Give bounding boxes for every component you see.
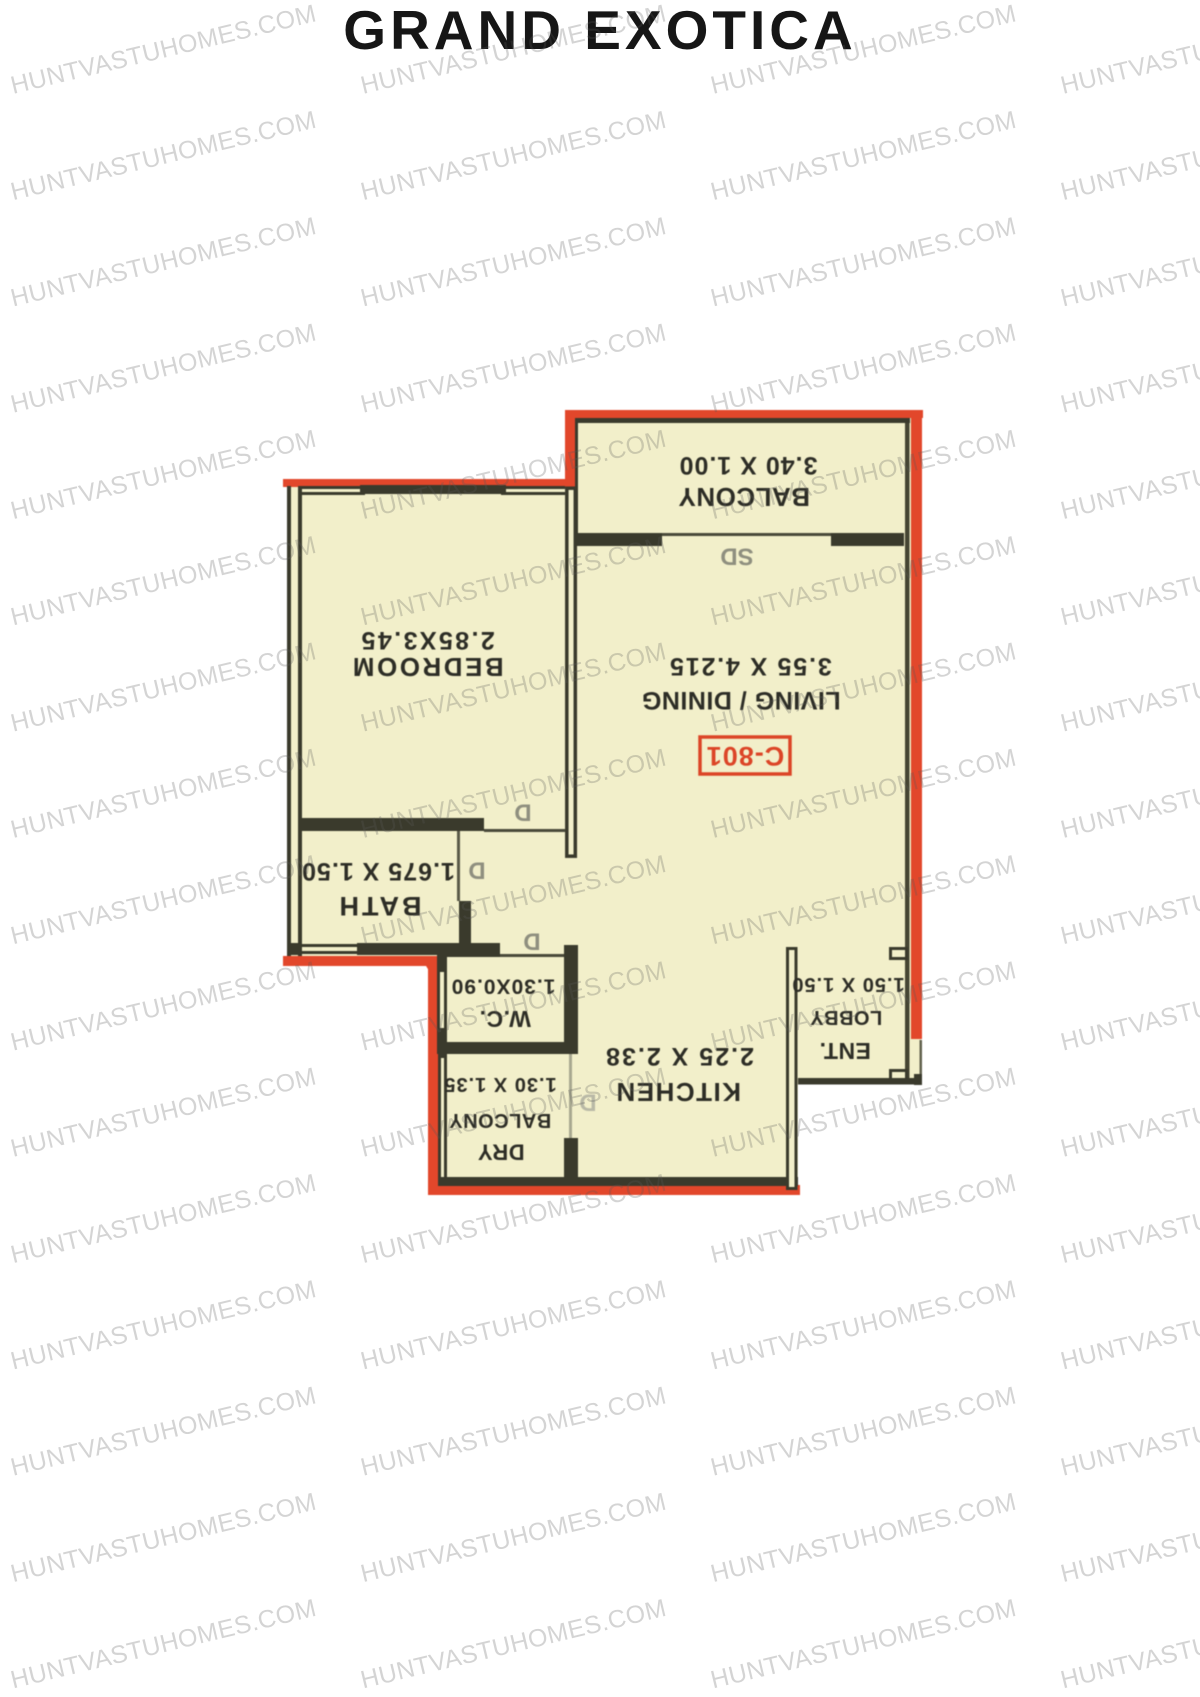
svg-text:HUNTVASTUHOMES.COM: HUNTVASTUHOMES.COM — [358, 850, 669, 950]
svg-text:HUNTVASTUHOMES.COM: HUNTVASTUHOMES.COM — [358, 425, 669, 525]
svg-text:HUNTVASTUHOMES.COM: HUNTVASTUHOMES.COM — [1058, 318, 1200, 418]
svg-text:HUNTVASTUHOMES.COM: HUNTVASTUHOMES.COM — [358, 1594, 669, 1694]
svg-text:HUNTVASTUHOMES.COM: HUNTVASTUHOMES.COM — [708, 956, 1019, 1056]
svg-text:HUNTVASTUHOMES.COM: HUNTVASTUHOMES.COM — [8, 637, 319, 737]
svg-text:HUNTVASTUHOMES.COM: HUNTVASTUHOMES.COM — [8, 744, 319, 844]
svg-text:HUNTVASTUHOMES.COM: HUNTVASTUHOMES.COM — [708, 1275, 1019, 1375]
svg-text:HUNTVASTUHOMES.COM: HUNTVASTUHOMES.COM — [1058, 1062, 1200, 1162]
svg-text:HUNTVASTUHOMES.COM: HUNTVASTUHOMES.COM — [1058, 1381, 1200, 1481]
svg-text:HUNTVASTUHOMES.COM: HUNTVASTUHOMES.COM — [358, 1381, 669, 1481]
svg-text:HUNTVASTUHOMES.COM: HUNTVASTUHOMES.COM — [8, 318, 319, 418]
svg-text:HUNTVASTUHOMES.COM: HUNTVASTUHOMES.COM — [8, 1594, 319, 1694]
svg-text:HUNTVASTUHOMES.COM: HUNTVASTUHOMES.COM — [708, 1062, 1019, 1162]
svg-text:HUNTVASTUHOMES.COM: HUNTVASTUHOMES.COM — [8, 106, 319, 206]
svg-text:HUNTVASTUHOMES.COM: HUNTVASTUHOMES.COM — [708, 212, 1019, 312]
svg-text:HUNTVASTUHOMES.COM: HUNTVASTUHOMES.COM — [708, 1169, 1019, 1269]
svg-text:HUNTVASTUHOMES.COM: HUNTVASTUHOMES.COM — [708, 318, 1019, 418]
svg-text:HUNTVASTUHOMES.COM: HUNTVASTUHOMES.COM — [358, 637, 669, 737]
svg-text:HUNTVASTUHOMES.COM: HUNTVASTUHOMES.COM — [358, 212, 669, 312]
svg-text:HUNTVASTUHOMES.COM: HUNTVASTUHOMES.COM — [708, 106, 1019, 206]
svg-text:HUNTVASTUHOMES.COM: HUNTVASTUHOMES.COM — [358, 1062, 669, 1162]
svg-text:HUNTVASTUHOMES.COM: HUNTVASTUHOMES.COM — [708, 425, 1019, 525]
svg-text:HUNTVASTUHOMES.COM: HUNTVASTUHOMES.COM — [1058, 744, 1200, 844]
svg-text:HUNTVASTUHOMES.COM: HUNTVASTUHOMES.COM — [358, 744, 669, 844]
svg-text:HUNTVASTUHOMES.COM: HUNTVASTUHOMES.COM — [1058, 1594, 1200, 1694]
svg-text:HUNTVASTUHOMES.COM: HUNTVASTUHOMES.COM — [8, 850, 319, 950]
svg-text:HUNTVASTUHOMES.COM: HUNTVASTUHOMES.COM — [1058, 425, 1200, 525]
svg-text:HUNTVASTUHOMES.COM: HUNTVASTUHOMES.COM — [1058, 531, 1200, 631]
svg-text:HUNTVASTUHOMES.COM: HUNTVASTUHOMES.COM — [708, 0, 1019, 100]
svg-text:HUNTVASTUHOMES.COM: HUNTVASTUHOMES.COM — [708, 1594, 1019, 1694]
svg-text:HUNTVASTUHOMES.COM: HUNTVASTUHOMES.COM — [1058, 956, 1200, 1056]
svg-text:HUNTVASTUHOMES.COM: HUNTVASTUHOMES.COM — [358, 1488, 669, 1588]
svg-text:HUNTVASTUHOMES.COM: HUNTVASTUHOMES.COM — [8, 1169, 319, 1269]
svg-text:HUNTVASTUHOMES.COM: HUNTVASTUHOMES.COM — [8, 1381, 319, 1481]
svg-text:HUNTVASTUHOMES.COM: HUNTVASTUHOMES.COM — [358, 106, 669, 206]
svg-text:HUNTVASTUHOMES.COM: HUNTVASTUHOMES.COM — [708, 531, 1019, 631]
svg-text:HUNTVASTUHOMES.COM: HUNTVASTUHOMES.COM — [8, 956, 319, 1056]
svg-text:HUNTVASTUHOMES.COM: HUNTVASTUHOMES.COM — [708, 1381, 1019, 1481]
svg-text:HUNTVASTUHOMES.COM: HUNTVASTUHOMES.COM — [8, 531, 319, 631]
svg-text:HUNTVASTUHOMES.COM: HUNTVASTUHOMES.COM — [708, 850, 1019, 950]
svg-text:HUNTVASTUHOMES.COM: HUNTVASTUHOMES.COM — [708, 637, 1019, 737]
svg-text:HUNTVASTUHOMES.COM: HUNTVASTUHOMES.COM — [1058, 0, 1200, 100]
svg-text:HUNTVASTUHOMES.COM: HUNTVASTUHOMES.COM — [1058, 1488, 1200, 1588]
svg-text:HUNTVASTUHOMES.COM: HUNTVASTUHOMES.COM — [8, 1488, 319, 1588]
svg-text:HUNTVASTUHOMES.COM: HUNTVASTUHOMES.COM — [708, 744, 1019, 844]
svg-text:HUNTVASTUHOMES.COM: HUNTVASTUHOMES.COM — [358, 531, 669, 631]
svg-text:HUNTVASTUHOMES.COM: HUNTVASTUHOMES.COM — [1058, 1275, 1200, 1375]
svg-text:HUNTVASTUHOMES.COM: HUNTVASTUHOMES.COM — [8, 425, 319, 525]
svg-text:HUNTVASTUHOMES.COM: HUNTVASTUHOMES.COM — [1058, 106, 1200, 206]
svg-text:HUNTVASTUHOMES.COM: HUNTVASTUHOMES.COM — [358, 318, 669, 418]
svg-text:HUNTVASTUHOMES.COM: HUNTVASTUHOMES.COM — [8, 1275, 319, 1375]
svg-text:HUNTVASTUHOMES.COM: HUNTVASTUHOMES.COM — [8, 1062, 319, 1162]
svg-text:HUNTVASTUHOMES.COM: HUNTVASTUHOMES.COM — [358, 1169, 669, 1269]
svg-text:HUNTVASTUHOMES.COM: HUNTVASTUHOMES.COM — [358, 956, 669, 1056]
svg-text:HUNTVASTUHOMES.COM: HUNTVASTUHOMES.COM — [1058, 212, 1200, 312]
svg-text:HUNTVASTUHOMES.COM: HUNTVASTUHOMES.COM — [1058, 637, 1200, 737]
svg-text:HUNTVASTUHOMES.COM: HUNTVASTUHOMES.COM — [1058, 1169, 1200, 1269]
svg-text:HUNTVASTUHOMES.COM: HUNTVASTUHOMES.COM — [358, 1275, 669, 1375]
svg-text:HUNTVASTUHOMES.COM: HUNTVASTUHOMES.COM — [358, 0, 669, 100]
svg-text:HUNTVASTUHOMES.COM: HUNTVASTUHOMES.COM — [8, 212, 319, 312]
svg-text:HUNTVASTUHOMES.COM: HUNTVASTUHOMES.COM — [1058, 850, 1200, 950]
svg-text:HUNTVASTUHOMES.COM: HUNTVASTUHOMES.COM — [708, 1488, 1019, 1588]
svg-text:HUNTVASTUHOMES.COM: HUNTVASTUHOMES.COM — [8, 0, 319, 100]
